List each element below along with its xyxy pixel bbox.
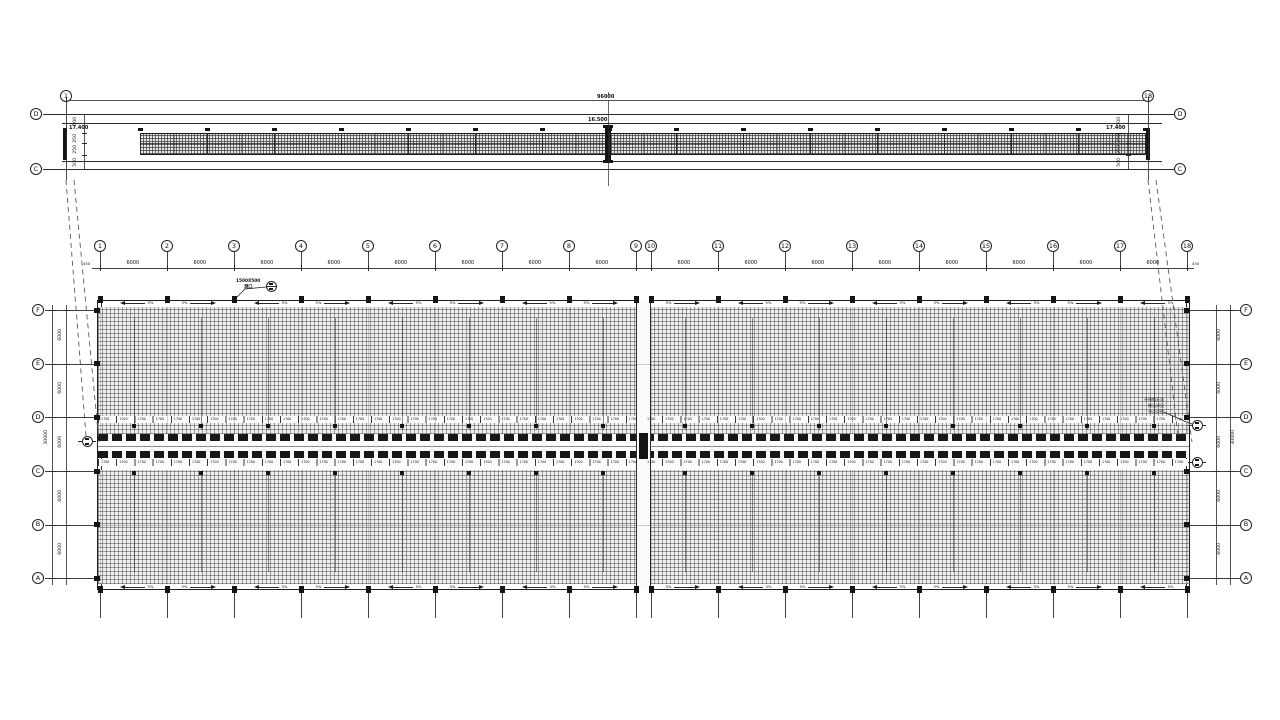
purlin-dim: 1700 xyxy=(975,418,983,421)
plan-bottom-column xyxy=(165,586,170,593)
strip-center-dim: 16.500 xyxy=(588,118,607,123)
plan-grid-bubble-4: 4 xyxy=(295,240,307,252)
plan-end-offset-dim: 450 xyxy=(83,262,90,266)
strip-band-minor-divider xyxy=(241,133,242,155)
roof-brace-mark xyxy=(884,471,888,475)
plan-right-row-bubble-E: E xyxy=(1240,358,1252,370)
slope-arrow-head xyxy=(345,585,350,589)
plan-grid-faint-lower xyxy=(569,470,570,584)
plan-grid-faint-upper xyxy=(569,307,570,434)
expansion-joint-column xyxy=(639,433,648,459)
plan-left-dim-tick xyxy=(63,578,70,579)
plan-top-column xyxy=(783,296,788,303)
purlin-dim: 1700 xyxy=(247,461,255,464)
purlin-dim: 1700 xyxy=(611,461,619,464)
plan-grid-bubble-7: 7 xyxy=(496,240,508,252)
plan-right-row-dim: 6000 xyxy=(1218,329,1223,341)
slope-arrow-label: 5% xyxy=(282,301,288,305)
plan-bottom-column xyxy=(1051,586,1056,593)
plan-grid-faint-upper xyxy=(435,307,436,434)
plan-grid-faint-upper xyxy=(919,307,920,434)
slope-arrow-label: 5% xyxy=(316,585,322,589)
slope-arrow-line xyxy=(592,587,614,588)
plan-grid-bubble-6: 6 xyxy=(429,240,441,252)
plan-top-column xyxy=(850,296,855,303)
plan-grid-faint-lower xyxy=(100,470,101,584)
plan-grid-bubble-10: 10 xyxy=(645,240,657,252)
strip-band-divider xyxy=(408,133,409,155)
slope-arrow-line xyxy=(525,303,547,304)
roof-brace-mark xyxy=(884,424,888,428)
purlin-dim: 1700 xyxy=(720,461,728,464)
plan-left-row-bubble-D: D xyxy=(32,411,44,423)
strip-side-dim-text: 250 xyxy=(1118,145,1123,154)
plan-right-column xyxy=(1184,469,1190,474)
slope-arrow-line xyxy=(942,587,964,588)
plan-bay-dim: 6000 xyxy=(745,261,758,266)
purlin-dim: 1700 xyxy=(702,418,710,421)
plan-top-column xyxy=(1051,296,1056,303)
plan-left-row-bubble-A: A xyxy=(32,572,44,584)
strip-dim-tick xyxy=(66,97,67,103)
plan-grid-bubble-9: 9 xyxy=(630,240,642,252)
strip-band-label-mark xyxy=(741,128,746,131)
slope-arrow-label: 5% xyxy=(900,301,906,305)
purlin-dim: 1700 xyxy=(1102,461,1110,464)
plan-left-dimline xyxy=(66,305,67,585)
plan-right-column xyxy=(1184,576,1190,581)
strip-band-divider xyxy=(475,133,476,155)
purlin-dim: 1700 xyxy=(956,418,964,421)
plan-grid-stub-below xyxy=(852,590,853,618)
strip-left-row-bubble-C: C xyxy=(30,163,42,175)
slope-arrow-label: 5% xyxy=(1168,301,1174,305)
plan-right-dim-tick xyxy=(1227,417,1234,418)
slope-arrow-label: 5% xyxy=(766,301,772,305)
roof-brace-mark xyxy=(817,424,821,428)
strip-left-row-leader xyxy=(43,114,62,115)
plan-grid-faint-upper xyxy=(368,307,369,434)
plan-bottom-column xyxy=(1118,586,1123,593)
plan-grid-stub-below xyxy=(785,590,786,618)
slope-arrow-head xyxy=(872,301,877,305)
plan-grid-faint-lower xyxy=(368,470,369,584)
callout-detail-bubble-num xyxy=(269,283,273,285)
roof-brace-mark xyxy=(1085,471,1089,475)
plan-right-dim-tick xyxy=(1227,525,1234,526)
dashed-leader-left-1 xyxy=(66,180,86,436)
purlin-dim: 1700 xyxy=(174,418,182,421)
strip-side-dim-tick xyxy=(1126,114,1131,115)
slope-arrow-head xyxy=(388,301,393,305)
purlin-dim: 1700 xyxy=(1066,418,1074,421)
purlin-dim: 1700 xyxy=(301,418,309,421)
roof-brace-mark xyxy=(750,424,754,428)
roof-brace-lower xyxy=(603,474,604,572)
slope-arrow-label: 5% xyxy=(148,301,154,305)
purlin-dim: 1700 xyxy=(756,418,764,421)
slope-arrow-line xyxy=(123,303,145,304)
roof-brace-lower xyxy=(335,474,336,572)
purlin-dim: 1700 xyxy=(429,418,437,421)
strip-right-row-leader xyxy=(1162,169,1174,170)
slope-arrow-label: 5% xyxy=(934,585,940,589)
plan-bay-dim: 6000 xyxy=(678,261,691,266)
plan-bottom-column xyxy=(783,586,788,593)
plan-top-dim-tick xyxy=(718,265,719,271)
plan-top-column xyxy=(165,296,170,303)
purlin-dim: 1700 xyxy=(938,461,946,464)
strip-side-dim-text: 500 xyxy=(74,158,79,167)
roof-brace-mark xyxy=(467,424,471,428)
plan-grid-faint-upper xyxy=(502,307,503,434)
plan-grid-faint-upper xyxy=(986,307,987,434)
slope-arrow-line xyxy=(674,587,696,588)
roof-brace-upper xyxy=(685,318,686,430)
roof-brace-mark xyxy=(601,471,605,475)
plan-top-column xyxy=(98,296,103,303)
slope-arrow-head xyxy=(479,301,484,305)
slope-arrow-head xyxy=(120,301,125,305)
plan-bottom-column xyxy=(850,586,855,593)
roof-brace-upper xyxy=(1020,318,1021,430)
plan-left-row-bubble-F: F xyxy=(32,304,44,316)
slope-arrow-label: 5% xyxy=(450,301,456,305)
slope-arrow-label: 5% xyxy=(550,301,556,305)
slope-arrow-line xyxy=(257,587,279,588)
plan-right-dim-tick xyxy=(1213,471,1220,472)
purlin-dim: 1700 xyxy=(374,418,382,421)
slope-arrow-head xyxy=(963,301,968,305)
strip-band-label-mark xyxy=(1009,128,1014,131)
strip-side-dim-tick xyxy=(82,143,87,144)
slope-arrow-line xyxy=(391,587,413,588)
purlin-dim: 1700 xyxy=(811,461,819,464)
roof-brace-upper xyxy=(752,318,753,430)
purlin-dim: 1700 xyxy=(265,418,273,421)
detail-marker-left-num xyxy=(85,438,89,441)
plan-right-row-dim: 6000 xyxy=(1218,382,1223,394)
purlin-dim: 1700 xyxy=(793,418,801,421)
purlin-dim: 1700 xyxy=(1047,418,1055,421)
plan-top-dim-tick xyxy=(435,265,436,271)
slope-arrow-head xyxy=(963,585,968,589)
purlin-dim: 1700 xyxy=(465,418,473,421)
plan-right-row-bubble-B: B xyxy=(1240,519,1252,531)
roof-brace-mark xyxy=(266,471,270,475)
slope-arrow-head xyxy=(829,301,834,305)
slope-arrow-head xyxy=(829,585,834,589)
strip-band-label-mark xyxy=(674,128,679,131)
strip-band-minor-divider xyxy=(978,133,979,155)
roof-brace-upper xyxy=(886,318,887,430)
plan-bay-dim: 6000 xyxy=(1080,261,1093,266)
purlin-dim: 1700 xyxy=(137,461,145,464)
slope-arrow-head xyxy=(345,301,350,305)
purlin-dim: 1700 xyxy=(811,418,819,421)
roof-brace-upper xyxy=(335,318,336,430)
plan-top-dim-tick xyxy=(100,265,101,271)
roof-brace-mark xyxy=(951,424,955,428)
roof-brace-upper xyxy=(469,318,470,430)
purlin-dim: 1700 xyxy=(210,461,218,464)
purlin-dim: 1700 xyxy=(665,461,673,464)
plan-grid-bubble-14: 14 xyxy=(913,240,925,252)
roof-brace-upper xyxy=(603,318,604,430)
slope-arrow-label: 5% xyxy=(800,585,806,589)
strip-band-divider xyxy=(207,133,208,155)
strip-band-divider xyxy=(274,133,275,155)
purlin-dim: 1700 xyxy=(483,461,491,464)
slope-arrow-head xyxy=(872,585,877,589)
plan-bottom-column xyxy=(716,586,721,593)
strip-band-minor-divider xyxy=(844,133,845,155)
plan-right-dim-tick xyxy=(1227,364,1234,365)
roof-brace-lower xyxy=(268,474,269,572)
strip-band-divider xyxy=(1145,133,1146,155)
plan-grid-faint-lower xyxy=(1187,470,1188,584)
plan-grid-bubble-5: 5 xyxy=(362,240,374,252)
plan-grid-stub-below xyxy=(234,590,235,618)
roof-brace-mark xyxy=(601,424,605,428)
plan-grid-bubble-16: 16 xyxy=(1047,240,1059,252)
plan-left-column xyxy=(94,308,100,313)
strip-side-dim-tick xyxy=(82,114,87,115)
plan-left-dim-tick xyxy=(49,525,56,526)
plan-top-dim-tick xyxy=(1120,265,1121,271)
purlin-dim: 1700 xyxy=(356,461,364,464)
plan-grid-faint-lower xyxy=(651,470,652,584)
plan-grid-faint-lower xyxy=(167,470,168,584)
roof-brace-mark xyxy=(132,424,136,428)
roof-brace-mark xyxy=(683,424,687,428)
slope-arrow-head xyxy=(738,301,743,305)
plan-left-row-bubble-C: C xyxy=(32,465,44,477)
purlin-dim: 1700 xyxy=(538,418,546,421)
strip-side-dim-tick xyxy=(1126,155,1131,156)
slope-arrow-head xyxy=(1006,585,1011,589)
plan-left-row-dim: 6000 xyxy=(59,436,64,448)
slope-arrow-line xyxy=(808,587,830,588)
purlin-dim: 1700 xyxy=(756,461,764,464)
plan-left-dim-tick xyxy=(63,525,70,526)
plan-top-column xyxy=(634,296,639,303)
plan-right-overall-line xyxy=(1230,305,1231,585)
plan-bottom-column xyxy=(1185,586,1190,593)
slope-arrow-line xyxy=(1076,303,1098,304)
strip-band-divider xyxy=(944,133,945,155)
plan-top-column xyxy=(1185,296,1190,303)
plan-top-column xyxy=(567,296,572,303)
purlin-dim: 1700 xyxy=(392,461,400,464)
purlin-dim: 1700 xyxy=(847,418,855,421)
plan-top-dim-tick xyxy=(167,265,168,271)
purlin-dim: 1700 xyxy=(228,461,236,464)
roof-brace-lower xyxy=(1087,474,1088,572)
plan-grid-faint-upper xyxy=(234,307,235,434)
purlin-dim: 1700 xyxy=(465,461,473,464)
purlin-dim: 1700 xyxy=(1120,461,1128,464)
roof-brace-upper xyxy=(536,318,537,430)
plan-right-overall-dim: 30000 xyxy=(1232,430,1237,445)
strip-band-divider xyxy=(542,133,543,155)
purlin-dim: 1700 xyxy=(920,461,928,464)
plan-grid-bubble-11: 11 xyxy=(712,240,724,252)
purlin-dim: 1700 xyxy=(938,418,946,421)
callout-detail-bubble-divider xyxy=(266,286,277,287)
purlin-dim: 1700 xyxy=(1011,418,1019,421)
plan-top-dimline xyxy=(92,268,1194,269)
strip-overall-dim: 96000 xyxy=(596,95,615,100)
purlin-dim: 1700 xyxy=(247,418,255,421)
strip-band-minor-divider xyxy=(710,133,711,155)
plan-bay-dim: 6000 xyxy=(462,261,475,266)
plan-top-column xyxy=(366,296,371,303)
purlin-dim: 1700 xyxy=(265,461,273,464)
strip-band-divider xyxy=(140,133,141,155)
roof-brace-lower xyxy=(953,474,954,572)
roof-brace-lower xyxy=(1154,474,1155,572)
strip-band-divider xyxy=(810,133,811,155)
purlin-dim: 1700 xyxy=(1011,461,1019,464)
purlin-dim: 1700 xyxy=(301,461,309,464)
slope-arrow-head xyxy=(613,301,618,305)
slope-arrow-line xyxy=(875,587,897,588)
plan-grid-faint-upper xyxy=(167,307,168,434)
roof-brace-mark xyxy=(534,471,538,475)
purlin-dim: 1700 xyxy=(847,461,855,464)
plan-grid-faint-lower xyxy=(785,470,786,584)
purlin-dim: 1700 xyxy=(829,461,837,464)
purlin-dim: 1700 xyxy=(1029,418,1037,421)
slope-arrow-head xyxy=(522,585,527,589)
plan-left-row-dim: 6000 xyxy=(59,329,64,341)
slope-arrow-line xyxy=(741,587,763,588)
plan-end-offset-dim: 450 xyxy=(1192,262,1199,266)
plan-bay-dim: 6000 xyxy=(1013,261,1026,266)
slope-arrow-head xyxy=(522,301,527,305)
purlin-dim: 1700 xyxy=(1157,418,1165,421)
plan-top-column xyxy=(984,296,989,303)
purlin-dim: 1700 xyxy=(702,461,710,464)
purlin-dim: 1700 xyxy=(410,461,418,464)
slope-arrow-label: 5% xyxy=(934,301,940,305)
purlin-dim: 1700 xyxy=(629,418,637,421)
purlin-dim: 1700 xyxy=(738,461,746,464)
plan-grid-bubble-2: 2 xyxy=(161,240,173,252)
roof-opening-callout-line1: 1500X500 xyxy=(236,279,260,285)
plan-bottom-column xyxy=(917,586,922,593)
roof-brace-mark xyxy=(750,471,754,475)
plan-grid-faint-lower xyxy=(986,470,987,584)
roof-brace-upper xyxy=(1087,318,1088,430)
slope-arrow-line xyxy=(1143,587,1165,588)
plan-bay-dim: 6000 xyxy=(261,261,274,266)
slope-arrow-line xyxy=(190,587,212,588)
strip-side-dim-line xyxy=(84,114,85,169)
strip-side-dim-tick xyxy=(1126,143,1131,144)
purlin-dim: 1700 xyxy=(774,461,782,464)
purlin-dim: 1700 xyxy=(137,418,145,421)
purlin-dim: 1700 xyxy=(865,418,873,421)
purlin-dim: 1700 xyxy=(647,418,655,421)
strip-dim-tick xyxy=(1148,97,1149,103)
slope-arrow-line xyxy=(1076,587,1098,588)
plan-top-dim-tick xyxy=(1053,265,1054,271)
roof-brace-lower xyxy=(685,474,686,572)
slope-arrow-label: 5% xyxy=(666,301,672,305)
strip-side-dim-tick xyxy=(82,169,87,170)
roof-brace-upper xyxy=(201,318,202,430)
plan-row-b-faint xyxy=(98,525,1189,526)
purlin-dim: 1700 xyxy=(956,461,964,464)
purlin-dim: 1700 xyxy=(884,418,892,421)
purlin-dim: 1700 xyxy=(993,418,1001,421)
plan-bottom-column xyxy=(366,586,371,593)
strip-band-label-mark xyxy=(406,128,411,131)
strip-band-divider xyxy=(341,133,342,155)
purlin-dim: 1700 xyxy=(101,418,109,421)
slope-arrow-head xyxy=(1006,301,1011,305)
plan-bay-dim: 6000 xyxy=(127,261,140,266)
purlin-dim: 1700 xyxy=(1138,418,1146,421)
purlin-dim: 1700 xyxy=(1047,461,1055,464)
slope-arrow-label: 5% xyxy=(900,585,906,589)
plan-grid-bubble-13: 13 xyxy=(846,240,858,252)
plan-bottom-column xyxy=(500,586,505,593)
roof-brace-upper xyxy=(402,318,403,430)
purlin-dim: 1700 xyxy=(592,418,600,421)
strip-grid1-centerline xyxy=(66,103,67,180)
plan-left-dim-tick xyxy=(63,364,70,365)
plan-bay-dim: 6000 xyxy=(946,261,959,266)
slope-arrow-head xyxy=(1097,301,1102,305)
roof-brace-mark xyxy=(1018,471,1022,475)
strip-line-c xyxy=(62,169,1162,170)
strip-band-minor-divider xyxy=(1112,133,1113,155)
plan-top-dim-tick xyxy=(368,265,369,271)
plan-top-column xyxy=(716,296,721,303)
plan-grid-bubble-17: 17 xyxy=(1114,240,1126,252)
slope-arrow-head xyxy=(1097,585,1102,589)
plan-bottom-column xyxy=(98,586,103,593)
roof-brace-upper xyxy=(953,318,954,430)
purlin-dim: 1700 xyxy=(1102,418,1110,421)
plan-grid-stub-below xyxy=(1187,590,1188,618)
detail-marker-right-d-sheet xyxy=(1195,427,1199,430)
plan-bay-dim: 6000 xyxy=(395,261,408,266)
purlin-dim: 1700 xyxy=(574,461,582,464)
plan-grid-faint-upper xyxy=(651,307,652,434)
plan-grid-bubble-8: 8 xyxy=(563,240,575,252)
plan-left-dim-tick xyxy=(49,364,56,365)
strip-band-divider xyxy=(743,133,744,155)
slope-arrow-label: 5% xyxy=(416,585,422,589)
slope-arrow-line xyxy=(458,303,480,304)
plan-bay-dim: 6000 xyxy=(879,261,892,266)
purlin-dim: 1700 xyxy=(574,418,582,421)
plan-grid-stub-below xyxy=(718,590,719,618)
strip-band-minor-divider xyxy=(509,133,510,155)
purlin-dim: 1700 xyxy=(1175,461,1183,464)
plan-left-column xyxy=(94,469,100,474)
roof-brace-mark xyxy=(400,471,404,475)
purlin-dim: 1700 xyxy=(192,418,200,421)
slope-arrow-head xyxy=(1140,585,1145,589)
plan-grid-stub-below xyxy=(301,590,302,618)
strip-band-label-mark xyxy=(138,128,143,131)
slope-arrow-label: 5% xyxy=(584,301,590,305)
